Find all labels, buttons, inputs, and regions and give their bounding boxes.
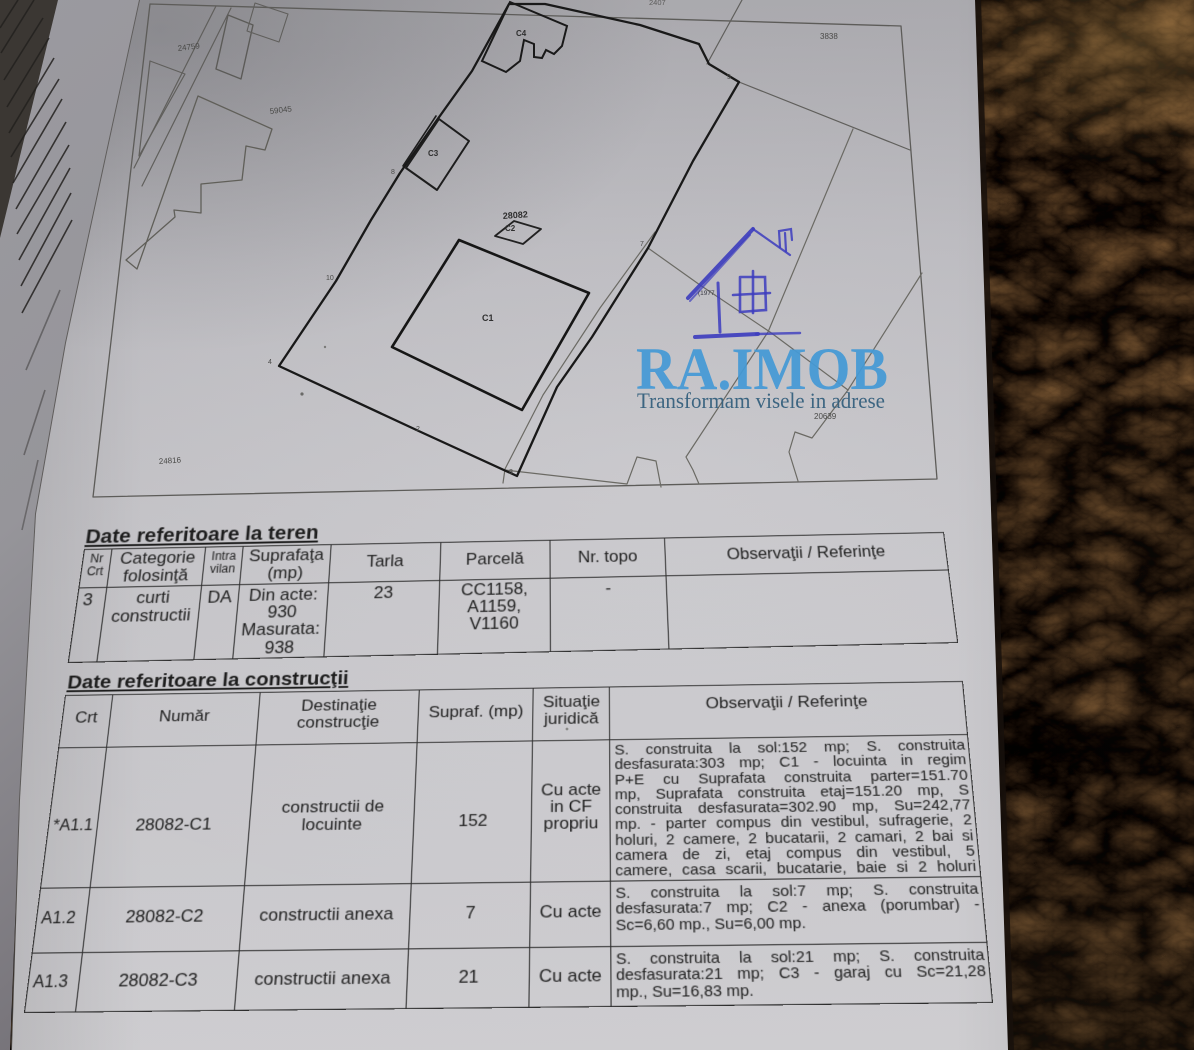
svg-text:2: 2 — [416, 426, 420, 433]
svg-text:24759: 24759 — [177, 41, 201, 53]
svg-text:28082: 28082 — [502, 209, 528, 221]
svg-text:59045: 59045 — [269, 104, 293, 116]
svg-text:C2: C2 — [505, 224, 516, 233]
svg-text:C4: C4 — [516, 29, 527, 38]
svg-text:20639: 20639 — [814, 412, 837, 421]
svg-text:4: 4 — [268, 359, 272, 366]
svg-text:(1977: (1977 — [698, 290, 715, 297]
svg-text:3: 3 — [509, 469, 513, 476]
svg-text:7: 7 — [640, 241, 644, 248]
svg-text:8: 8 — [391, 169, 395, 176]
svg-text:5: 5 — [727, 74, 731, 81]
svg-text:2407: 2407 — [649, 0, 666, 7]
svg-text:10: 10 — [326, 275, 334, 282]
svg-text:Transformam visele in adrese: Transformam visele in adrese — [637, 388, 885, 413]
svg-text:C1: C1 — [482, 313, 494, 323]
svg-text:24816: 24816 — [159, 455, 182, 466]
svg-text:C3: C3 — [428, 149, 439, 158]
svg-text:3838: 3838 — [820, 32, 838, 41]
